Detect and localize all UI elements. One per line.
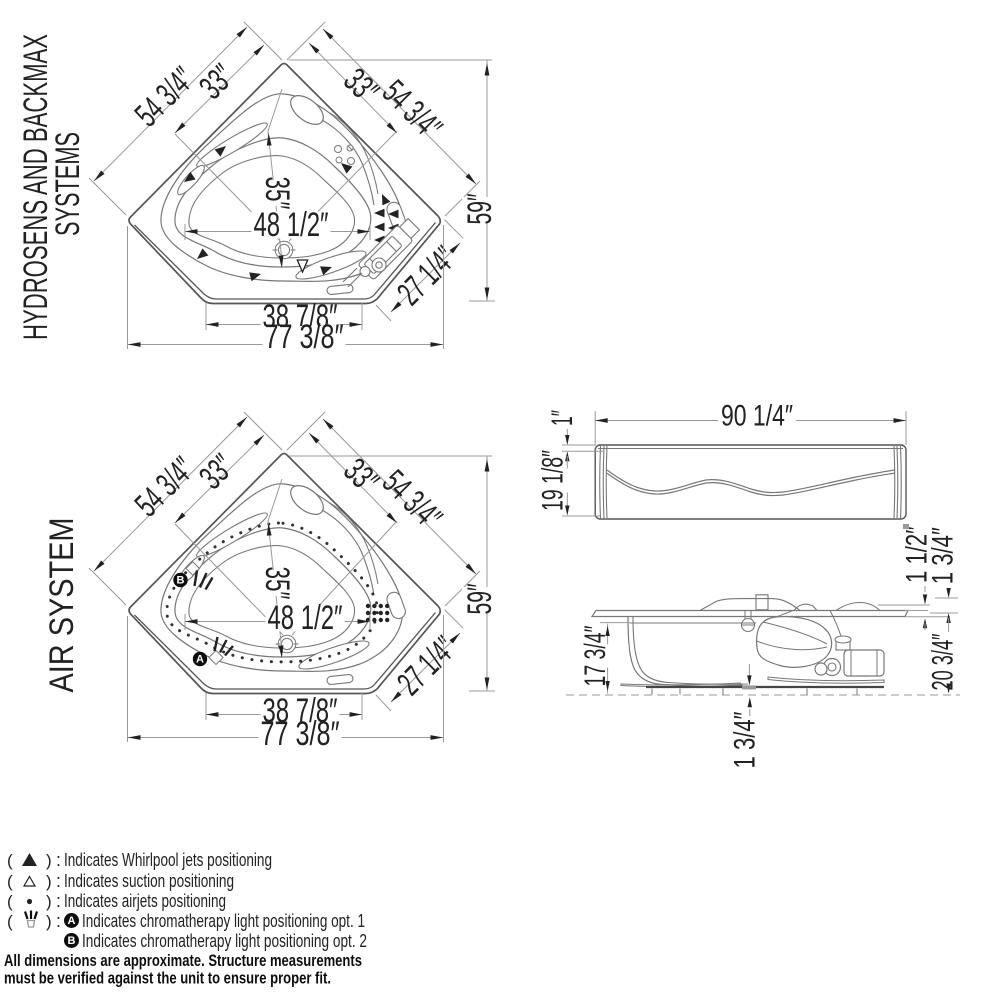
svg-text:48 1/2″: 48 1/2″ [254,206,329,244]
svg-text::: : [56,850,61,870]
svg-text:77 3/8″: 77 3/8″ [261,715,340,753]
svg-text:AIR SYSTEM: AIR SYSTEM [43,518,81,693]
svg-text:Indicates airjets positioning: Indicates airjets positioning [64,891,226,911]
svg-text:A: A [68,915,76,927]
svg-text::: : [56,871,61,891]
svg-text:48 1/2″: 48 1/2″ [268,599,343,637]
svg-text:35″: 35″ [258,177,296,210]
svg-text:59″: 59″ [461,194,499,225]
svg-text:B: B [177,574,185,586]
svg-text:Indicates Whirlpool jets posit: Indicates Whirlpool jets positioning [64,850,272,870]
svg-text::: : [56,891,61,911]
svg-text:): ) [46,851,52,870]
svg-text:59″: 59″ [461,584,499,615]
svg-text:A: A [196,653,204,665]
svg-text:): ) [46,892,52,911]
svg-text:90 1/4″: 90 1/4″ [721,400,793,433]
svg-text:Indicates suction positioning: Indicates suction positioning [64,871,234,891]
svg-text:1″: 1″ [546,410,579,426]
svg-text:1 3/4″: 1 3/4″ [729,711,762,768]
svg-text:must be verified against the u: must be verified against the unit to ens… [4,969,331,988]
svg-text:35″: 35″ [258,567,296,600]
svg-text:(: ( [7,912,13,931]
svg-text:SYSTEMS: SYSTEMS [49,132,87,236]
svg-text:Indicates chromatherapy light: Indicates chromatherapy light positionin… [82,931,367,951]
svg-text:(: ( [7,851,13,870]
svg-text:All dimensions are approximate: All dimensions are approximate. Structur… [4,951,362,970]
svg-text:B: B [68,935,76,947]
svg-text:19 1/8″: 19 1/8″ [537,450,570,511]
svg-text:(: ( [7,872,13,891]
svg-text:Indicates chromatherapy light: Indicates chromatherapy light positionin… [82,911,365,931]
svg-text:20 3/4″: 20 3/4″ [927,633,960,690]
svg-text::: : [56,911,61,931]
svg-text:17 3/4″: 17 3/4″ [579,625,612,686]
svg-text:(: ( [7,892,13,911]
svg-text:77 3/8″: 77 3/8″ [265,318,344,356]
svg-text:1 3/4″: 1 3/4″ [927,527,960,584]
svg-text:): ) [46,872,52,891]
svg-text:): ) [46,912,52,931]
